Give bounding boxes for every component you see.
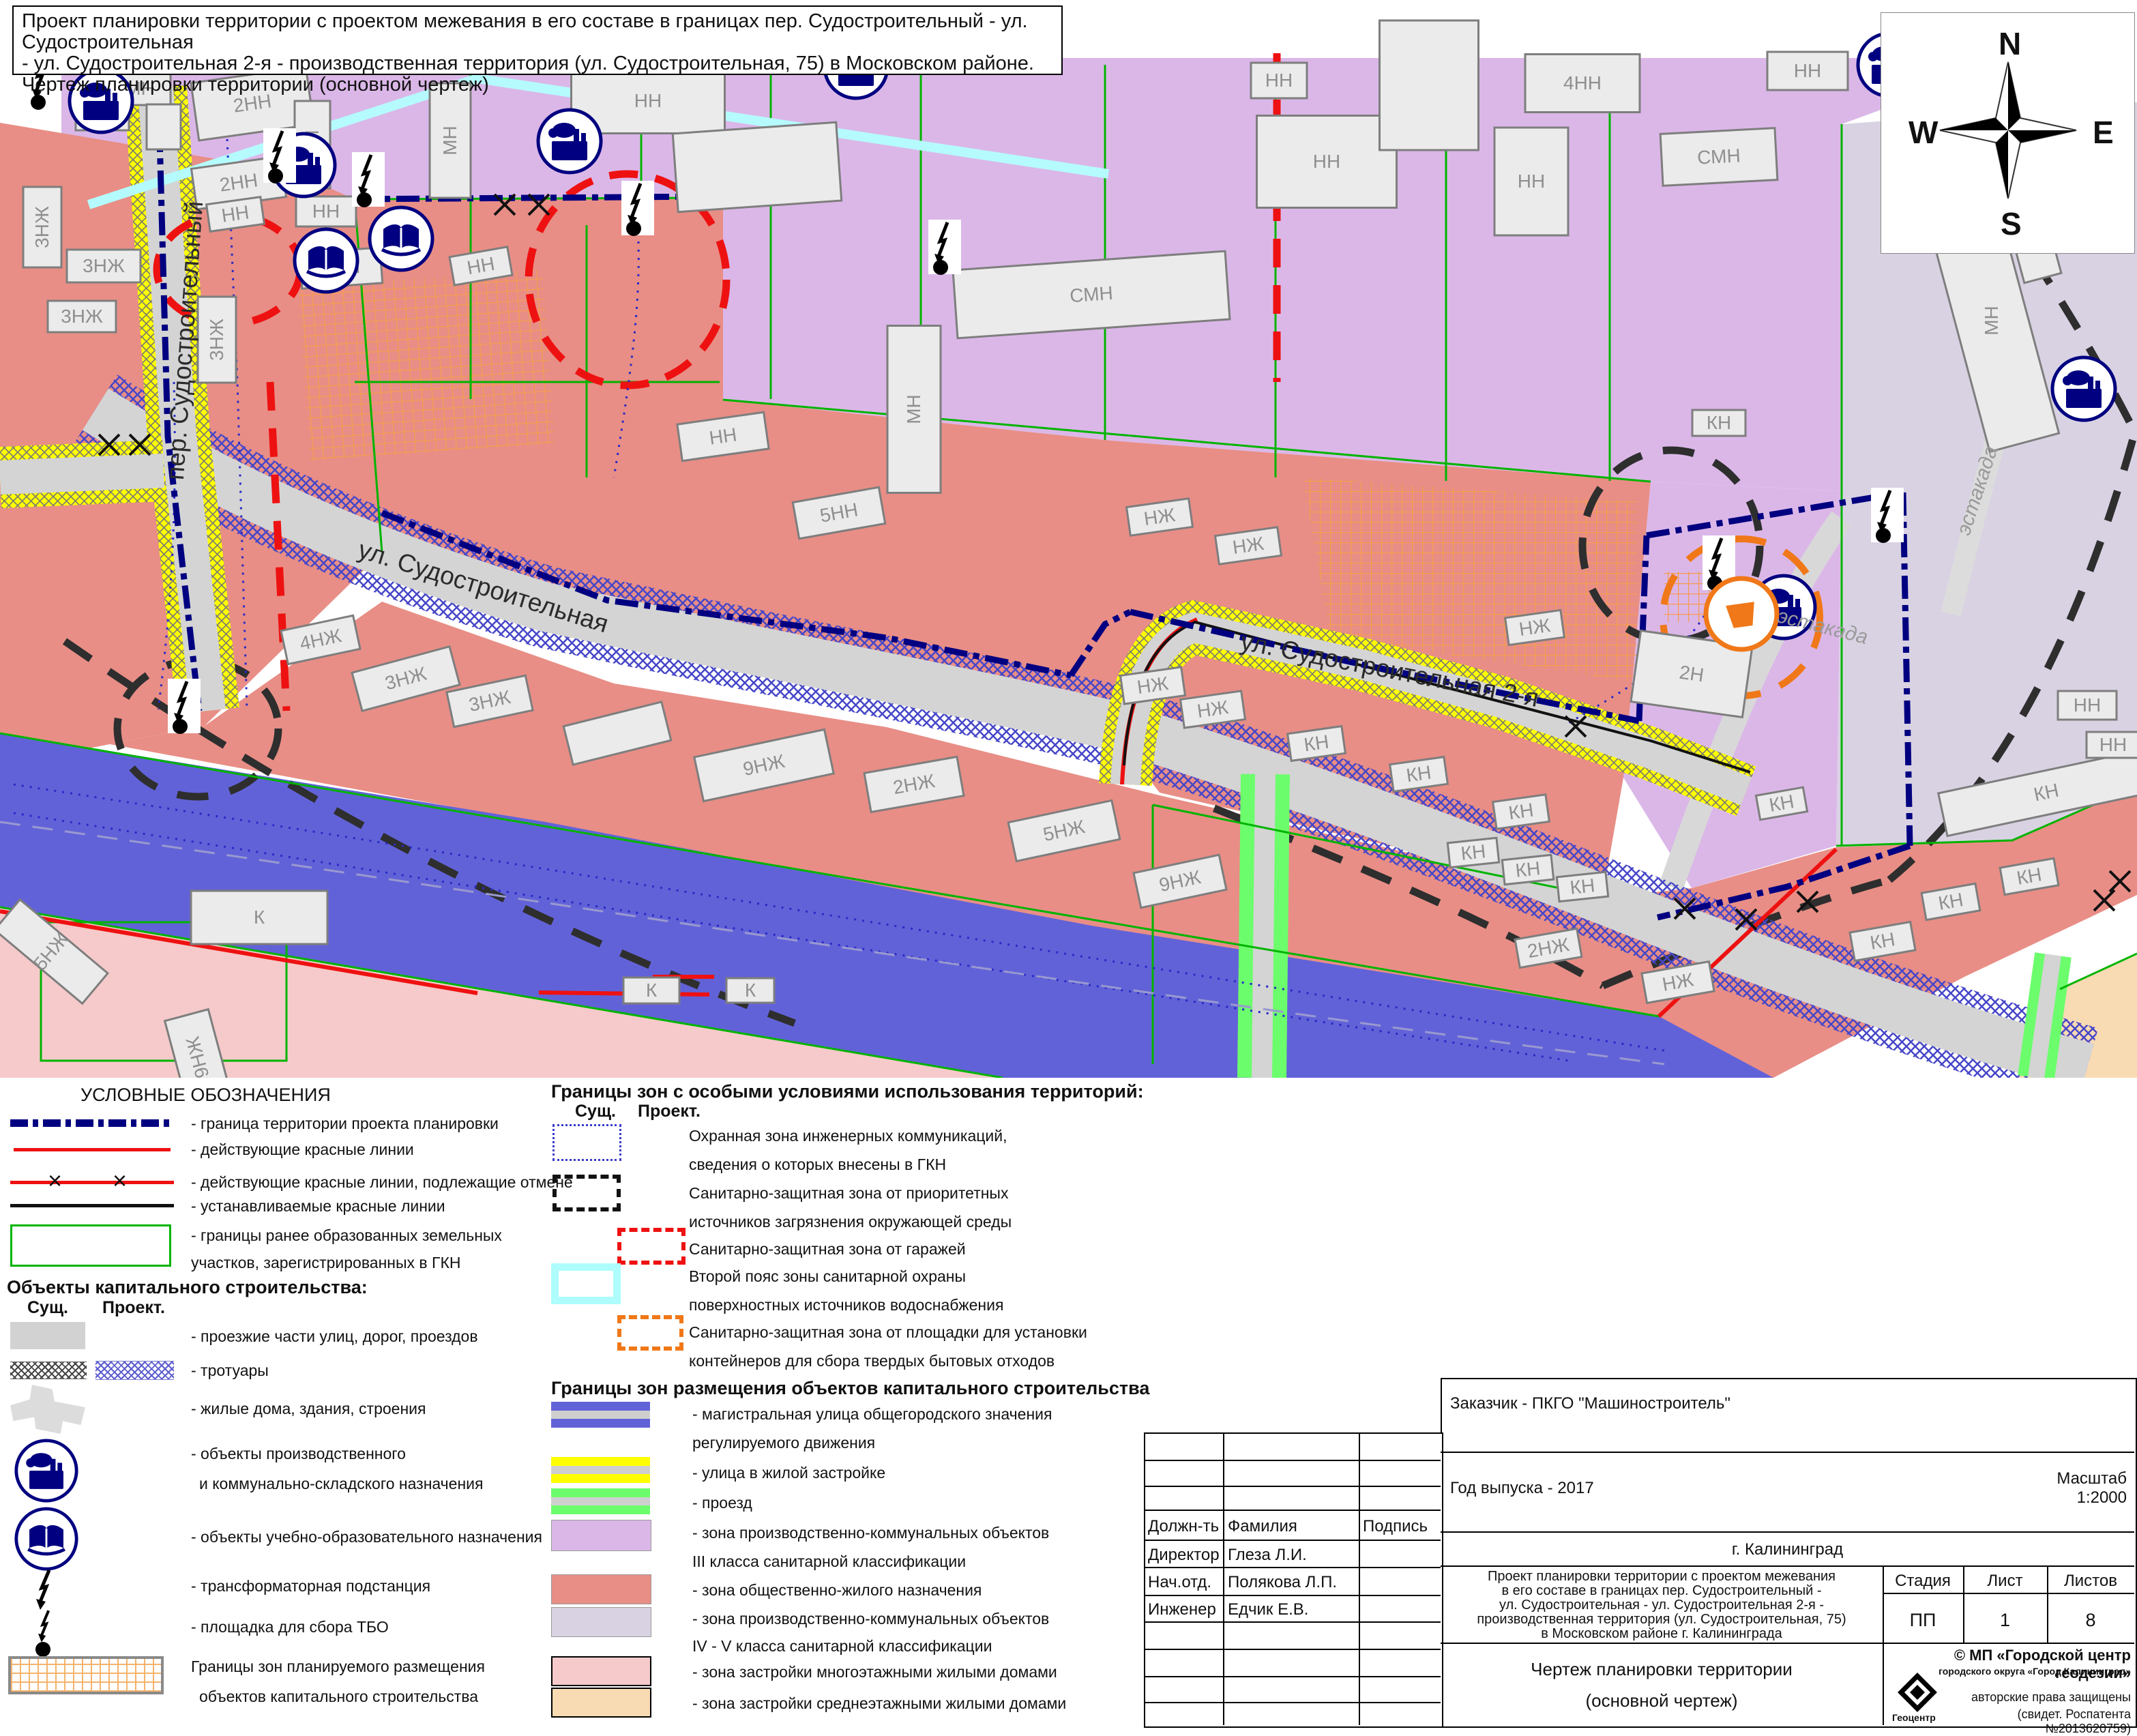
building: К xyxy=(191,891,327,944)
legend-sym-sanitary-garage xyxy=(617,1228,686,1265)
compass-star xyxy=(1926,48,2090,212)
svg-text:К: К xyxy=(646,980,658,1001)
svg-text:МН: МН xyxy=(439,126,460,156)
building: 3НЖ xyxy=(67,250,141,282)
legend-sym-sanitary-priority xyxy=(552,1175,621,1211)
svg-text:НЖ: НЖ xyxy=(1196,696,1230,722)
svg-text:КН: КН xyxy=(1303,731,1330,756)
legend-item: регулируемого движения xyxy=(692,1434,875,1452)
legend-sym-residential-street xyxy=(551,1457,650,1484)
svg-text:КН: КН xyxy=(2015,864,2043,889)
building: НН xyxy=(296,196,356,226)
tb-scale-label: Масштаб xyxy=(2005,1469,2127,1488)
tb-sheet-value: 1 xyxy=(1963,1610,2047,1631)
svg-text:КН: КН xyxy=(1507,799,1535,824)
building: НН xyxy=(1494,128,1568,235)
legend-item: - устанавливаемые красные линии xyxy=(191,1197,445,1216)
geocentr-logo-text: Геоцентр xyxy=(1892,1712,1936,1723)
svg-text:КН: КН xyxy=(1405,762,1432,786)
svg-text:НЖ: НЖ xyxy=(1143,504,1177,529)
tb-row-name: Глеза Л.И. xyxy=(1228,1546,1307,1565)
tb-rights2: (свидет. Роспатента №2013620759) xyxy=(1964,1707,2131,1736)
tb-stage-value: ПП xyxy=(1883,1610,1963,1631)
legend-item: сведения о которых внесены в ГКН xyxy=(689,1156,946,1174)
legend-item: IV - V класса санитарной классификации xyxy=(692,1637,992,1656)
page: { "palette":{"purple":"#dbb7e8","violet"… xyxy=(0,0,2137,1728)
compass-w: W xyxy=(1908,114,1938,151)
legend-item: и коммунально-складского назначения xyxy=(199,1475,483,1493)
legend-item: объектов капитального строительства xyxy=(199,1688,478,1706)
svg-text:НН: НН xyxy=(2074,694,2101,716)
legend-sym-parcels xyxy=(10,1224,171,1267)
legend-item: - зона производственно-коммунальных объе… xyxy=(692,1610,1049,1628)
tb-year: Год выпуска - 2017 xyxy=(1450,1479,1594,1498)
legend-factory-icon xyxy=(14,1438,79,1503)
building: 3НЖ xyxy=(23,187,61,267)
building xyxy=(147,104,181,149)
tb-sheets-value: 8 xyxy=(2047,1610,2134,1631)
tb-row-name: Полякова Л.П. xyxy=(1228,1573,1337,1592)
svg-text:НЖ: НЖ xyxy=(1518,615,1552,640)
legend-item: Охранная зона инженерных коммуникаций, xyxy=(689,1127,1007,1145)
legend-sym-sidewalk-project xyxy=(95,1361,174,1380)
compass-n: N xyxy=(1999,25,2021,62)
legend-sec4-title: Границы зон размещения объектов капиталь… xyxy=(551,1378,1149,1399)
building: НН xyxy=(1257,116,1397,208)
legend-sym-zone-industrial-45 xyxy=(551,1607,651,1637)
transformer-icon xyxy=(621,181,654,236)
svg-text:4НН: 4НН xyxy=(1563,72,1602,93)
compass-s: S xyxy=(2001,205,2022,242)
col-existing: Сущ. xyxy=(575,1102,616,1121)
book-icon xyxy=(370,207,432,270)
legend-sym-planned-grid xyxy=(8,1656,164,1694)
building: НН xyxy=(2058,691,2117,720)
legend-sym-redline-cancelled: ×× xyxy=(10,1171,174,1194)
svg-text:МН: МН xyxy=(1981,306,2002,336)
svg-text:КН: КН xyxy=(1569,874,1596,898)
legend-item: поверхностных источников водоснабжения xyxy=(689,1296,1003,1314)
building: НН xyxy=(2087,732,2137,758)
legend-lightning-icon xyxy=(26,1569,67,1613)
svg-text:НН: НН xyxy=(220,201,250,226)
tb-row-pos: Инженер xyxy=(1148,1600,1216,1619)
building: КН xyxy=(1502,855,1553,884)
svg-text:3НЖ: 3НЖ xyxy=(83,255,125,276)
legend-sym-road xyxy=(10,1322,85,1349)
legend-item: - жилые дома, здания, строения xyxy=(191,1400,426,1418)
legend-item: - проезд xyxy=(692,1494,752,1512)
svg-text:КН: КН xyxy=(1460,840,1487,864)
map-title-line2: - ул. Судостроительная 2-я - производств… xyxy=(22,53,1053,74)
legend-item: - улица в жилой застройке xyxy=(692,1464,885,1482)
map-title-line3: Чертеж планировки территории (основной ч… xyxy=(22,74,1053,95)
tb-doc-name2: (основной чертеж) xyxy=(1441,1690,1883,1711)
legend-sym-zone-midrise xyxy=(551,1688,651,1718)
legend-item: Санитарно-защитная зона от площадки для … xyxy=(689,1323,1087,1342)
legend-item: контейнеров для сбора твердых бытовых от… xyxy=(689,1352,1055,1370)
tb-col-position: Должн-ть xyxy=(1148,1517,1219,1536)
building xyxy=(1380,20,1479,150)
legend-sym-newredline xyxy=(10,1204,174,1207)
legend-item: Границы зон планируемого размещения xyxy=(191,1658,485,1676)
svg-text:К: К xyxy=(745,980,756,1001)
building: НН xyxy=(1767,52,1848,90)
factory-icon xyxy=(538,110,601,173)
legend-item: - зона общественно-жилого назначения xyxy=(692,1581,982,1600)
plan-map: 2ННСМННН2ННМНННМНННМНСМННННН4ННННННСМН2Н… xyxy=(0,0,2137,1078)
svg-text:3НЖ: 3НЖ xyxy=(206,319,227,361)
tbo-icon xyxy=(1706,578,1777,649)
building: 4НН xyxy=(1525,55,1640,113)
legend-item: - тротуары xyxy=(191,1362,269,1380)
tb-project-name: Проект планировки территории с проектом … xyxy=(1445,1570,1878,1641)
transformer-icon xyxy=(168,679,201,734)
svg-text:СМН: СМН xyxy=(1696,145,1741,168)
legend-item: - зона застройки многоэтажными жилыми до… xyxy=(692,1663,1057,1681)
legend-item: III класса санитарной классификации xyxy=(692,1553,966,1571)
tb-col-sign: Подпись xyxy=(1363,1517,1428,1536)
legend-sym-water-belt xyxy=(551,1263,621,1304)
tb-row-pos: Нач.отд. xyxy=(1148,1573,1211,1592)
svg-text:2Н: 2Н xyxy=(1678,662,1705,686)
legend-sym-driveway xyxy=(551,1488,650,1516)
building: 3НЖ xyxy=(48,301,116,332)
tb-sheet-label: Лист xyxy=(1963,1572,2047,1591)
building: КН xyxy=(1692,410,1745,436)
svg-text:КН: КН xyxy=(1936,889,1964,914)
legend-sym-main-street xyxy=(551,1402,650,1429)
col-project: Проект. xyxy=(638,1102,701,1121)
legend-sym-zone-public-residential xyxy=(551,1574,651,1604)
map-title-line1: Проект планировки территории с проектом … xyxy=(22,11,1053,53)
tb-scale: 1:2000 xyxy=(2005,1488,2127,1507)
legend-sym-house xyxy=(10,1385,85,1434)
legend-item: источников загрязнения окружающей среды xyxy=(689,1213,1012,1231)
tb-client: Заказчик - ПКГО "Машиностроитель" xyxy=(1450,1394,1730,1413)
transformer-icon xyxy=(352,152,385,207)
geocentr-logo-icon xyxy=(1898,1673,1937,1712)
tb-city: г. Калининград xyxy=(1441,1540,2134,1559)
building: СМН xyxy=(1660,128,1778,186)
svg-text:К: К xyxy=(254,907,265,928)
legend-item: Санитарно-защитная зона от гаражей xyxy=(689,1240,966,1259)
legend-item: - объекты производственного xyxy=(191,1445,406,1463)
legend-sym-boundary xyxy=(10,1119,171,1127)
legend-sym-zone-industrial-3 xyxy=(551,1520,651,1551)
building: К xyxy=(726,978,774,1003)
legend-sec3-title: Границы зон с особыми условиями использо… xyxy=(551,1081,1144,1102)
svg-text:НЖ: НЖ xyxy=(1231,533,1265,558)
building xyxy=(673,122,841,211)
legend-item: - зона производственно-коммунальных объе… xyxy=(692,1524,1049,1542)
tb-stage-label: Стадия xyxy=(1883,1572,1963,1591)
legend-item: - границы ранее образованных земельных xyxy=(191,1226,502,1245)
building: КН xyxy=(1447,838,1499,867)
svg-text:МН: МН xyxy=(903,394,924,424)
legend-sym-zone-multistorey xyxy=(551,1656,651,1686)
compass-rose: N W E S xyxy=(1881,12,2135,254)
legend-item: - действующие красные линии, подлежащие … xyxy=(191,1173,573,1192)
legend-item: - действующие красные линии xyxy=(191,1141,414,1159)
legend-book-icon xyxy=(14,1506,79,1572)
legend-sym-redline xyxy=(14,1148,171,1151)
tb-row-name: Едчик Е.В. xyxy=(1228,1600,1308,1619)
svg-text:КН: КН xyxy=(1707,412,1732,433)
svg-text:НН: НН xyxy=(312,201,340,222)
transformer-icon xyxy=(928,220,961,275)
svg-text:НН: НН xyxy=(1265,70,1293,91)
legend-item: - зона застройки среднеэтажными жилыми д… xyxy=(692,1694,1066,1713)
legend-title: УСЛОВНЫЕ ОБОЗНАЧЕНИЯ xyxy=(80,1085,331,1106)
svg-text:НЖ: НЖ xyxy=(1136,673,1170,698)
svg-text:НН: НН xyxy=(1518,171,1545,192)
svg-text:3НЖ: 3НЖ xyxy=(61,306,103,327)
legend-item: - граница территории проекта планировки xyxy=(191,1115,499,1133)
col-existing: Сущ. xyxy=(27,1298,68,1318)
tb-doc-name: Чертеж планировки территории xyxy=(1441,1659,1883,1680)
map-title: Проект планировки территории с проектом … xyxy=(12,5,1063,75)
legend-tbo-icon xyxy=(26,1607,67,1658)
building: МН xyxy=(887,326,941,493)
building: К xyxy=(623,977,679,1003)
svg-text:3НЖ: 3НЖ xyxy=(31,206,53,248)
svg-text:НН: НН xyxy=(1313,151,1340,172)
legend-item: - проезжие части улиц, дорог, проездов xyxy=(191,1327,478,1346)
legend-item: - объекты учебно-образовательного назнач… xyxy=(191,1528,542,1546)
legend-item: - трансформаторная подстанция xyxy=(191,1577,430,1595)
building: НН xyxy=(1251,63,1307,98)
book-icon xyxy=(295,229,357,292)
tb-sheets-label: Листов xyxy=(2047,1572,2134,1591)
svg-text:КН: КН xyxy=(1767,791,1795,816)
tb-row-pos: Директор xyxy=(1148,1546,1220,1565)
factory-icon xyxy=(2052,357,2115,420)
tb-col-name: Фамилия xyxy=(1228,1517,1297,1536)
svg-text:КН: КН xyxy=(1868,928,1896,954)
svg-text:КН: КН xyxy=(1514,857,1542,881)
building: МН xyxy=(430,83,471,198)
legend-sym-utility-zone xyxy=(552,1124,621,1161)
svg-text:НН: НН xyxy=(1794,60,1821,81)
tb-rights1: авторские права защищены xyxy=(1964,1690,2131,1705)
legend-item: - площадка для сбора ТБО xyxy=(191,1618,389,1636)
svg-text:СМН: СМН xyxy=(1069,282,1113,306)
legend-item: - магистральная улица общегородского зна… xyxy=(692,1405,1052,1424)
building: КН xyxy=(1557,872,1608,901)
col-project: Проект. xyxy=(102,1298,165,1318)
svg-text:НН: НН xyxy=(2099,734,2127,755)
svg-text:НН: НН xyxy=(708,424,738,448)
transformer-icon xyxy=(263,128,296,183)
compass-e: E xyxy=(2093,114,2114,151)
legend-item: Санитарно-защитная зона от приоритетных xyxy=(689,1184,1008,1203)
transformer-icon xyxy=(1871,488,1904,543)
building: 3НЖ xyxy=(198,297,236,383)
legend-item: участков, зарегистрированных в ГКН xyxy=(191,1254,460,1272)
legend-sec2-title: Объекты капитального строительства: xyxy=(7,1277,368,1298)
legend-item: Второй пояс зоны санитарной охраны xyxy=(689,1267,966,1286)
legend-sym-sidewalk-existing xyxy=(10,1362,87,1379)
legend-sym-sanitary-waste xyxy=(617,1315,683,1351)
